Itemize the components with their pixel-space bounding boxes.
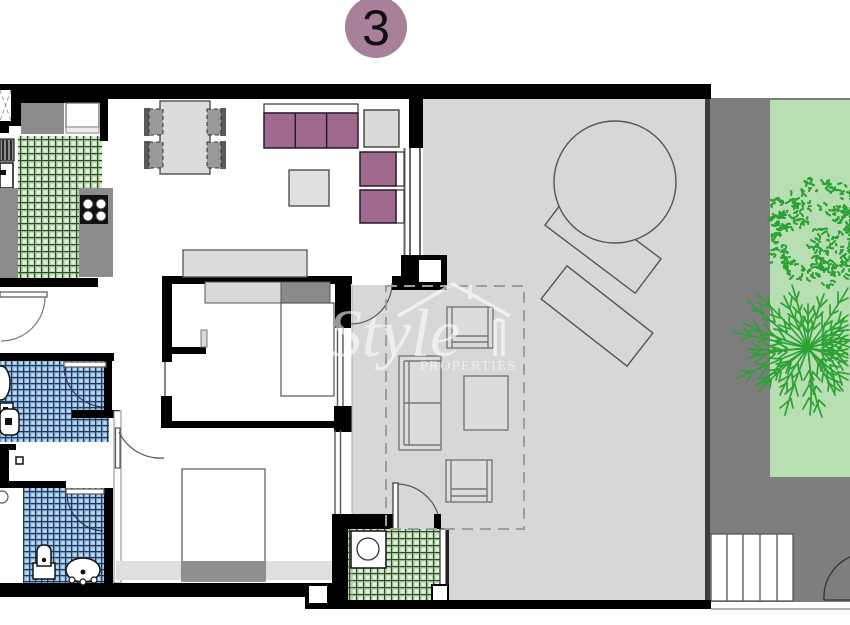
svg-text:PROPERTIES: PROPERTIES (420, 359, 517, 374)
svg-text:3: 3 (362, 0, 390, 56)
